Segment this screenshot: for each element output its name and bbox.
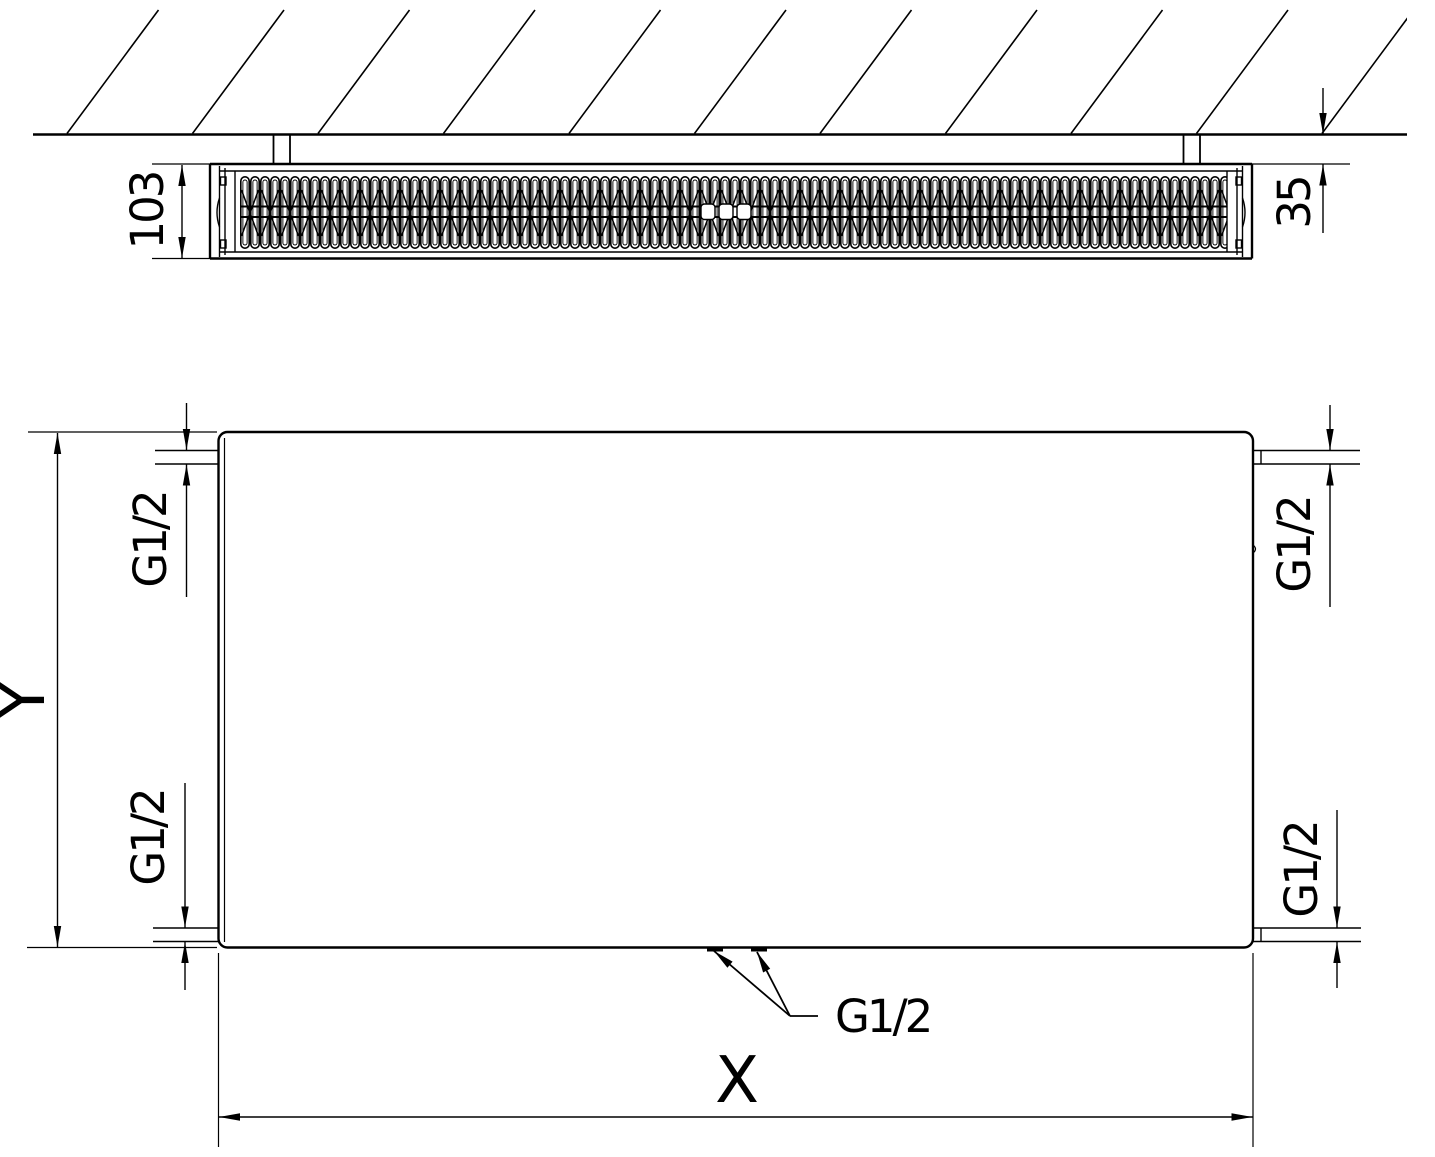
center-stub-right [751, 948, 767, 952]
arrow-up-icon [1333, 942, 1340, 963]
width-dimension: X [219, 953, 1254, 1147]
arrow-down-icon [1319, 113, 1326, 134]
wall-clearance-dimension: 35 [1268, 88, 1327, 233]
wall-clearance-label: 35 [1268, 177, 1321, 228]
connection-stub-top-right [1253, 451, 1360, 465]
front-view: G1/2 G1/2 G1/2 G1/2 [0, 403, 1361, 1147]
arrow-up-icon [54, 433, 61, 454]
thread-label-bottom-right: G1/2 [1275, 822, 1328, 917]
thread-label-top-right: G1/2 [1268, 497, 1321, 592]
arrow-up-icon [181, 942, 188, 963]
end-cap-right [1227, 166, 1245, 257]
leader-lines [714, 951, 818, 1016]
thread-dimension-bottom-left: G1/2 [122, 783, 189, 990]
thread-label-bottom-left: G1/2 [122, 790, 175, 885]
radiator-technical-drawing: 103 35 [0, 0, 1435, 1157]
bottom-center-connections: G1/2 [707, 948, 930, 1044]
thread-dimension-top-right: G1/2 [1268, 405, 1334, 607]
arrow-up-icon [178, 165, 185, 186]
section-view: 103 35 [33, 10, 1414, 259]
arrow-up-icon [1326, 465, 1333, 486]
arrow-down-icon [178, 237, 185, 258]
radiator-top-view [152, 164, 1350, 259]
width-dimension-label: X [715, 1044, 759, 1118]
arrow-up-icon [183, 465, 190, 486]
mounting-bracket-left [274, 135, 291, 163]
arrow-down-icon [1326, 429, 1333, 450]
height-dimension-label: Y [0, 680, 60, 721]
thread-dimension-bottom-right: G1/2 [1275, 810, 1341, 988]
thread-label-top-left: G1/2 [124, 492, 177, 587]
radiator-front-panel [219, 432, 1254, 948]
arrow-down-icon [181, 907, 188, 928]
arrow-left-icon [219, 1113, 240, 1120]
leader-arrow-icon [757, 952, 770, 973]
arrow-down-icon [1333, 907, 1340, 928]
depth-dimension-label: 103 [121, 172, 174, 249]
arrow-down-icon [54, 926, 61, 947]
connection-stub-bottom-left [153, 928, 219, 942]
thread-label-bottom-center: G1/2 [835, 990, 930, 1043]
connection-stub-bottom-right [1253, 928, 1361, 942]
end-cap-left [217, 166, 235, 257]
depth-dimension: 103 [121, 165, 186, 258]
mounting-bracket-right [1184, 135, 1201, 163]
wall-hatch-pattern [67, 10, 1414, 134]
arrow-right-icon [1232, 1113, 1253, 1120]
connection-stub-top-left [155, 451, 219, 465]
